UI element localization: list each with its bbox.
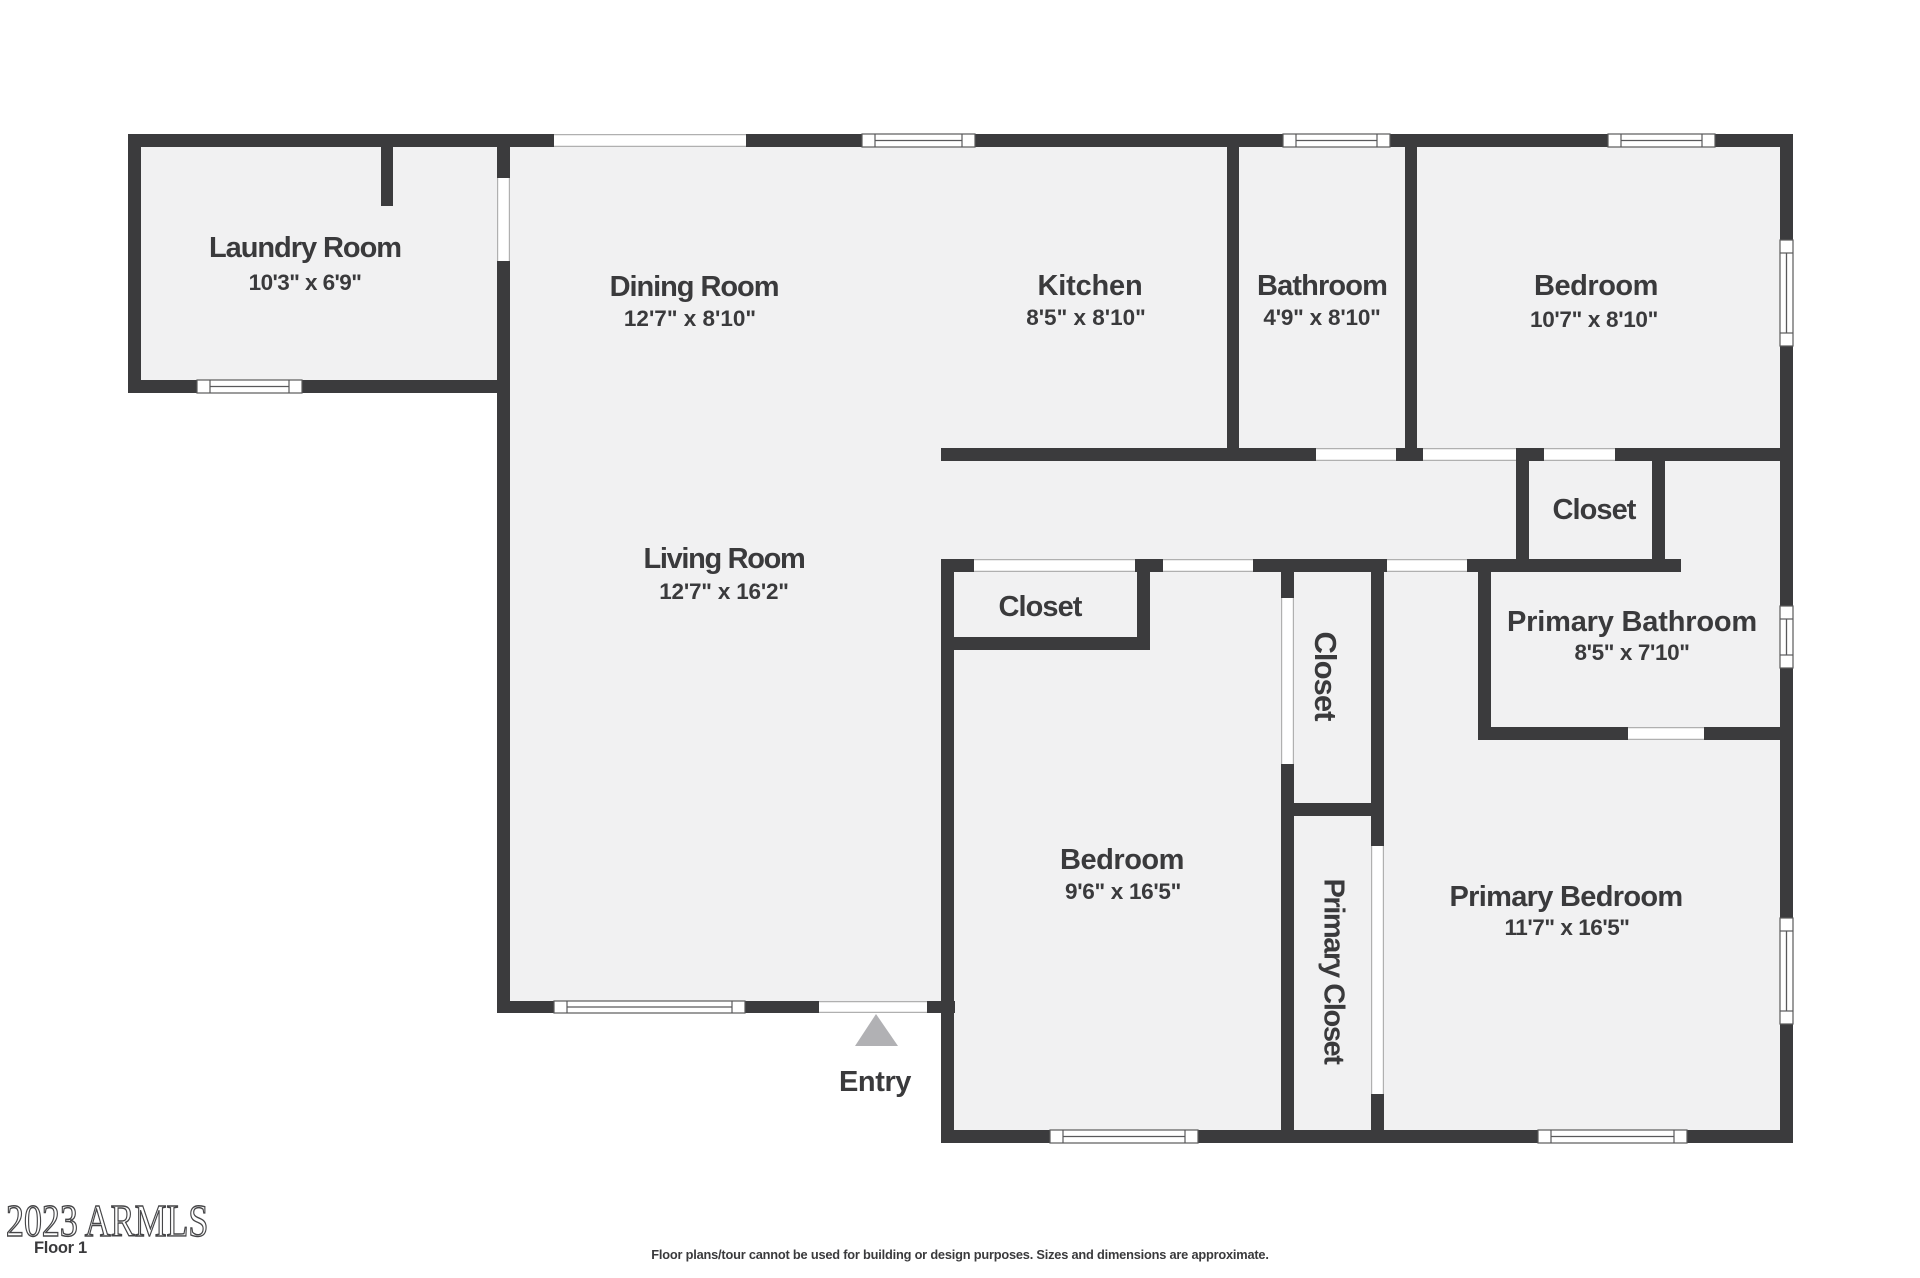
svg-text:10'7" x 8'10": 10'7" x 8'10" [1530,307,1658,332]
svg-text:Closet: Closet [1553,494,1637,526]
svg-text:11'7" x 16'5": 11'7" x 16'5" [1504,915,1629,940]
svg-text:8'5" x 8'10": 8'5" x 8'10" [1026,305,1146,330]
svg-text:12'7" x 8'10": 12'7" x 8'10" [624,306,756,331]
svg-text:Entry: Entry [839,1066,911,1098]
svg-text:Primary Bathroom: Primary Bathroom [1507,606,1757,638]
svg-text:Floor plans/tour cannot be use: Floor plans/tour cannot be used for buil… [651,1247,1268,1262]
svg-text:Kitchen: Kitchen [1038,270,1143,302]
svg-text:8'5" x 7'10": 8'5" x 7'10" [1574,640,1689,665]
svg-text:Bedroom: Bedroom [1060,844,1184,876]
svg-text:4'9" x 8'10": 4'9" x 8'10" [1263,305,1380,330]
svg-text:10'3" x 6'9": 10'3" x 6'9" [249,270,362,295]
svg-text:Bedroom: Bedroom [1534,270,1658,302]
svg-text:Laundry Room: Laundry Room [209,232,401,264]
svg-text:Living Room: Living Room [644,543,805,575]
svg-text:Bathroom: Bathroom [1257,270,1387,302]
svg-text:Dining Room: Dining Room [610,271,779,303]
svg-text:Closet: Closet [999,591,1083,623]
svg-text:9'6" x 16'5": 9'6" x 16'5" [1065,879,1181,904]
svg-text:12'7" x 16'2": 12'7" x 16'2" [659,579,789,604]
svg-text:Closet: Closet [1308,631,1343,721]
svg-text:Floor 1: Floor 1 [34,1239,87,1257]
svg-text:Primary Bedroom: Primary Bedroom [1449,881,1682,913]
svg-text:Primary Closet: Primary Closet [1318,878,1350,1065]
